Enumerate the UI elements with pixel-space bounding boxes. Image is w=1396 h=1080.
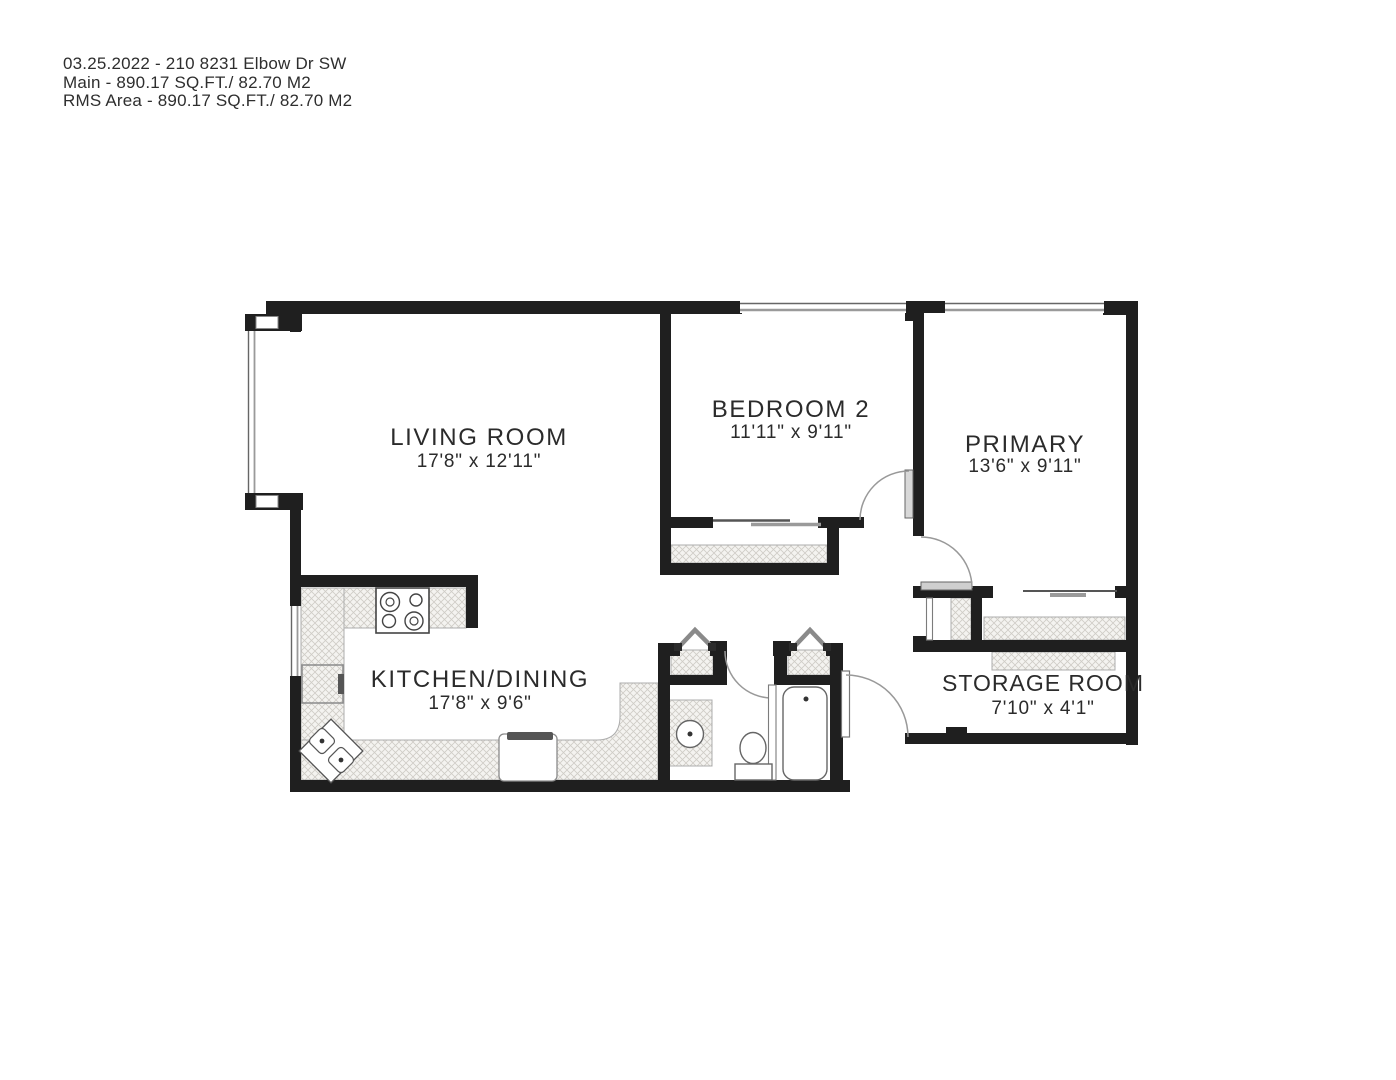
toilet-icon [735, 733, 772, 781]
entry-door-icon [842, 671, 909, 737]
bathroom-vanity-sink-icon [677, 721, 704, 748]
living-room-label: LIVING ROOM [390, 424, 568, 451]
kitchen-window-icon [290, 606, 301, 676]
kitchen-dining-dims: 17'8" x 9'6" [428, 693, 531, 714]
primary-dims: 13'6" x 9'11" [968, 456, 1081, 477]
primary-window-icon [945, 301, 1104, 313]
bedroom2-sliding-door-icon [713, 521, 821, 525]
stove-icon [376, 588, 429, 633]
bifold-door-left-icon [674, 630, 716, 651]
bedroom2-window-icon [740, 301, 906, 313]
primary-closet-shelf [984, 617, 1125, 640]
bath-closet-right-shelf [788, 650, 830, 675]
bifold-door-right-icon [789, 630, 831, 651]
hall-closet-door-icon [927, 598, 933, 640]
primary-label: PRIMARY [965, 431, 1085, 458]
closets [668, 545, 1125, 766]
storage-shelf [992, 652, 1115, 670]
living-room-dims: 17'8" x 12'11" [417, 451, 542, 472]
bay-window-icon [246, 317, 278, 508]
bedroom2-closet-shelf [671, 545, 827, 563]
floor-plan-page: 03.25.2022 - 210 8231 Elbow Dr SW Main -… [0, 0, 1396, 1080]
hinged-doors [725, 470, 972, 737]
bedroom2-door-icon [860, 470, 913, 520]
storage-room-dims: 7'10" x 4'1" [991, 698, 1094, 719]
bathroom-door-icon [725, 651, 772, 698]
hall-closet-shelf [951, 598, 971, 640]
bathtub-icon [783, 687, 827, 780]
bedroom2-label: BEDROOM 2 [712, 396, 870, 423]
counter-appliance-icon [302, 665, 344, 703]
bedroom2-dims: 11'11" x 9'11" [730, 422, 852, 443]
kitchen-dining-label: KITCHEN/DINING [371, 666, 589, 693]
dishwasher-icon [499, 732, 557, 781]
storage-room-label: STORAGE ROOM [942, 670, 1144, 696]
primary-sliding-door-icon [1023, 591, 1117, 595]
floor-plan-canvas: LIVING ROOM 17'8" x 12'11" BEDROOM 2 11'… [0, 0, 1396, 1080]
bifold-closet-doors [674, 630, 831, 651]
primary-door-icon [921, 537, 972, 590]
